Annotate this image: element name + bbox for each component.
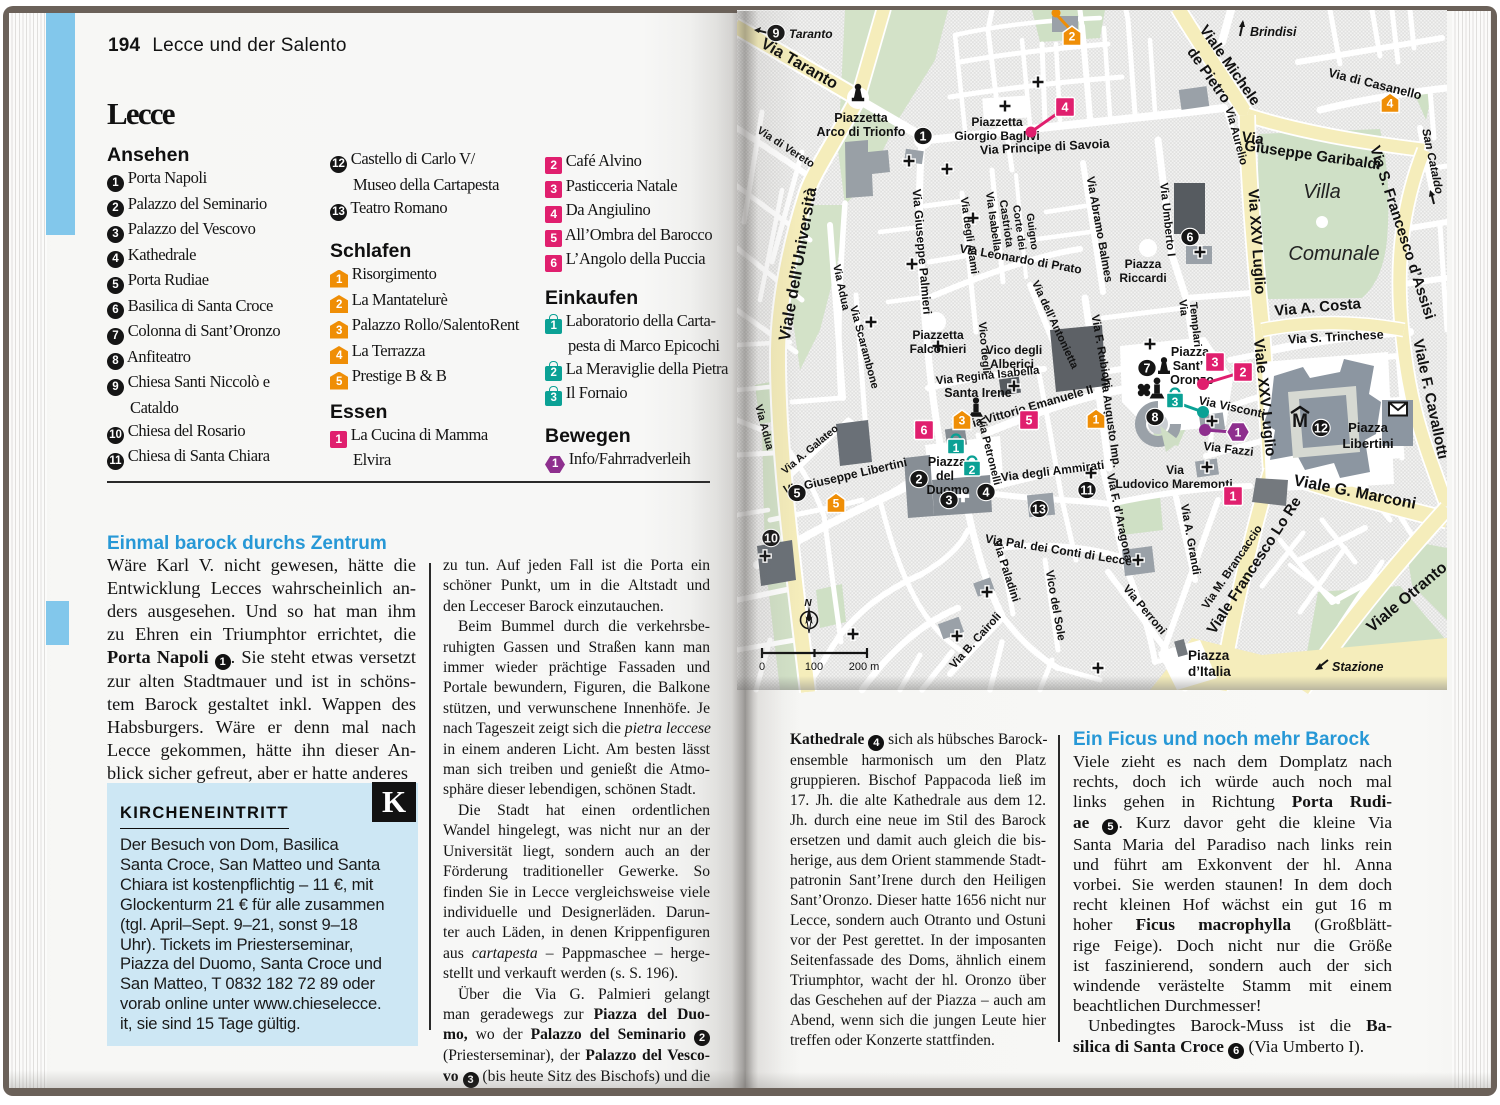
svg-text:Piazza: Piazza — [1125, 257, 1162, 271]
svg-text:Riccardi: Riccardi — [1119, 271, 1166, 285]
svg-text:Comunale: Comunale — [1288, 243, 1379, 265]
svg-text:Sant’: Sant’ — [1173, 359, 1204, 373]
svg-text:13: 13 — [1032, 503, 1046, 517]
svg-text:1: 1 — [1230, 490, 1237, 504]
svg-text:Villa: Villa — [1303, 181, 1340, 203]
svg-text:2: 2 — [1069, 30, 1076, 44]
svg-text:Falconieri: Falconieri — [910, 342, 967, 356]
svg-text:11: 11 — [1080, 484, 1093, 498]
svg-text:Libertini: Libertini — [1342, 436, 1393, 451]
svg-text:Piazza: Piazza — [1171, 345, 1210, 359]
svg-text:Piazzetta: Piazzetta — [971, 115, 1023, 129]
svg-text:3: 3 — [959, 414, 966, 428]
svg-text:del: del — [936, 469, 954, 483]
svg-text:Piazzetta: Piazzetta — [834, 111, 889, 125]
svg-text:0: 0 — [759, 661, 765, 673]
svg-text:1: 1 — [1235, 426, 1242, 440]
svg-text:N: N — [804, 598, 812, 609]
svg-text:Santa Irene: Santa Irene — [944, 386, 1011, 400]
svg-text:Stazione: Stazione — [1332, 660, 1383, 674]
svg-text:Piazza: Piazza — [1348, 420, 1389, 435]
svg-text:Piazza: Piazza — [1188, 648, 1230, 663]
svg-text:5: 5 — [1026, 414, 1033, 428]
svg-text:12: 12 — [1314, 422, 1328, 436]
svg-text:3: 3 — [946, 494, 953, 508]
svg-text:2: 2 — [1240, 366, 1247, 380]
svg-text:5: 5 — [833, 497, 840, 511]
svg-text:100: 100 — [805, 661, 823, 673]
svg-text:4: 4 — [1062, 101, 1069, 115]
svg-text:3: 3 — [1172, 395, 1179, 409]
svg-text:2: 2 — [969, 463, 976, 477]
svg-text:M: M — [1292, 411, 1308, 432]
svg-text:Arco di Trionfo: Arco di Trionfo — [817, 125, 906, 139]
svg-text:9: 9 — [773, 27, 780, 41]
svg-text:Brindisi: Brindisi — [1250, 25, 1297, 39]
svg-text:7: 7 — [1144, 362, 1151, 376]
svg-text:Piazza: Piazza — [928, 455, 967, 469]
svg-text:Vico degli: Vico degli — [986, 343, 1042, 357]
svg-text:5: 5 — [794, 487, 801, 501]
svg-text:Taranto: Taranto — [789, 27, 833, 41]
svg-text:1: 1 — [920, 130, 927, 144]
svg-text:Ludovico Maremonti: Ludovico Maremonti — [1115, 477, 1232, 491]
svg-text:Via: Via — [1166, 463, 1184, 477]
svg-text:Piazzetta: Piazzetta — [912, 328, 964, 342]
svg-text:4: 4 — [1387, 97, 1394, 111]
svg-text:3: 3 — [1212, 356, 1219, 370]
svg-text:200 m: 200 m — [849, 661, 880, 673]
svg-text:1: 1 — [953, 441, 960, 455]
svg-text:4: 4 — [983, 486, 990, 500]
svg-text:6: 6 — [1187, 231, 1194, 245]
svg-text:1: 1 — [1093, 413, 1100, 427]
svg-text:2: 2 — [916, 473, 923, 487]
svg-text:10: 10 — [764, 532, 778, 546]
svg-text:6: 6 — [921, 424, 928, 438]
svg-text:8: 8 — [1152, 411, 1159, 425]
